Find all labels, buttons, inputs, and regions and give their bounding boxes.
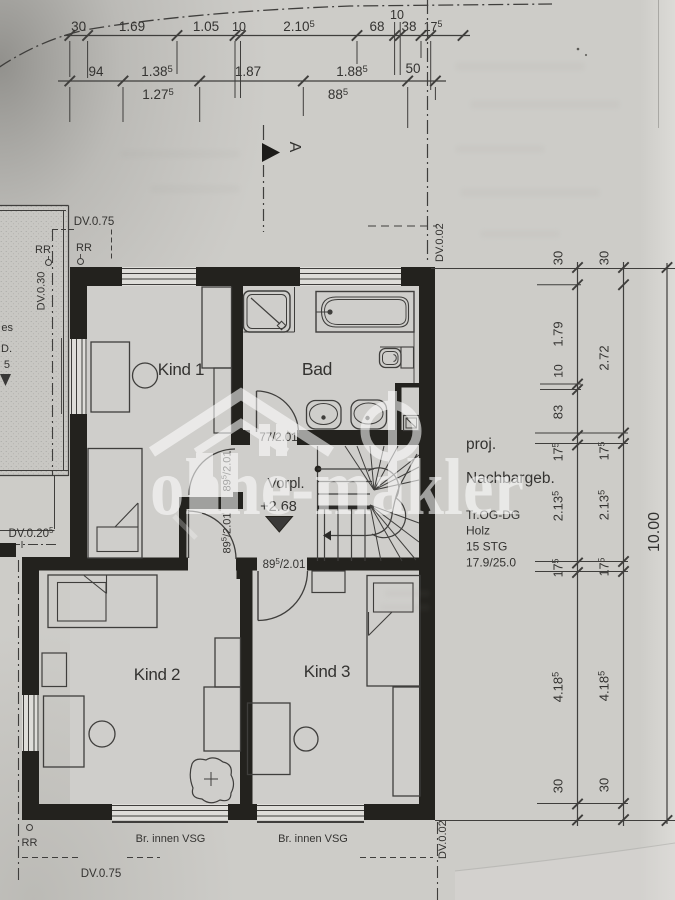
svg-text:30: 30 <box>551 779 566 793</box>
svg-text:10.00: 10.00 <box>646 512 663 552</box>
svg-text:1.87: 1.87 <box>235 64 261 79</box>
svg-text:DV.0.75: DV.0.75 <box>81 868 122 880</box>
svg-text:DV.0.205: DV.0.205 <box>9 526 55 540</box>
svg-text:30: 30 <box>597 251 612 265</box>
svg-text:DV.0.02: DV.0.02 <box>434 223 446 262</box>
svg-text:895/2.01: 895/2.01 <box>263 557 306 571</box>
svg-text:Kind 3: Kind 3 <box>304 662 350 681</box>
svg-text:38: 38 <box>401 19 416 34</box>
svg-text:1.79: 1.79 <box>551 321 566 346</box>
svg-text:RR: RR <box>76 242 92 254</box>
svg-text:1.05: 1.05 <box>193 19 219 34</box>
svg-text:D.: D. <box>1 343 12 355</box>
svg-text:50: 50 <box>405 61 420 76</box>
svg-text:2.72: 2.72 <box>597 345 612 370</box>
svg-text:30: 30 <box>551 251 566 265</box>
svg-text:A: A <box>286 142 303 153</box>
svg-text:Kind 2: Kind 2 <box>134 665 180 684</box>
svg-text:68: 68 <box>369 19 384 34</box>
svg-text:10: 10 <box>552 364 566 378</box>
svg-text:Kind 1: Kind 1 <box>158 360 204 379</box>
svg-text:94: 94 <box>88 64 104 79</box>
svg-text:DV.0.02: DV.0.02 <box>437 820 449 859</box>
svg-text:15 STG: 15 STG <box>466 540 507 554</box>
svg-text:RR: RR <box>22 837 38 849</box>
svg-text:DV.0.75: DV.0.75 <box>74 216 115 228</box>
svg-text:83: 83 <box>551 405 566 419</box>
svg-text:1.69: 1.69 <box>119 19 145 34</box>
svg-text:30: 30 <box>71 19 86 34</box>
svg-text:es: es <box>1 322 13 334</box>
svg-text:ohne-makler: ohne-makler <box>150 444 524 532</box>
svg-text:10: 10 <box>232 20 246 34</box>
svg-text:DV.0.30: DV.0.30 <box>36 272 48 311</box>
svg-text:Br. innen VSG: Br. innen VSG <box>136 833 206 845</box>
svg-text:5: 5 <box>4 359 10 371</box>
svg-text:RR: RR <box>35 244 51 256</box>
svg-text:Br. innen VSG: Br. innen VSG <box>278 833 348 845</box>
svg-text:17.9/25.0: 17.9/25.0 <box>466 556 516 570</box>
svg-text:30: 30 <box>597 778 612 792</box>
svg-text:Bad: Bad <box>302 359 332 379</box>
